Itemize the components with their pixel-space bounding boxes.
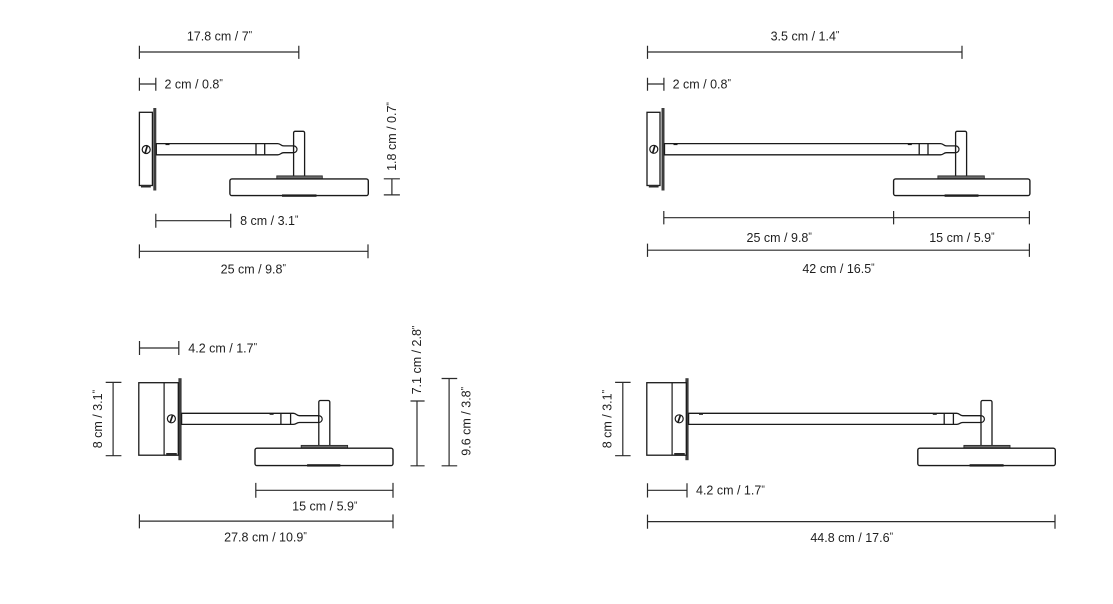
svg-text:2 cm / 0.8": 2 cm / 0.8": [673, 77, 732, 91]
svg-text:2 cm / 0.8": 2 cm / 0.8": [165, 77, 224, 91]
svg-text:8 cm / 3.1": 8 cm / 3.1": [91, 389, 105, 448]
svg-text:8 cm / 3.1": 8 cm / 3.1": [240, 214, 299, 228]
svg-text:25 cm / 9.8": 25 cm / 9.8": [221, 263, 287, 277]
svg-text:3.5 cm / 1.4": 3.5 cm / 1.4": [771, 29, 840, 43]
svg-text:7.1 cm / 2.8": 7.1 cm / 2.8": [410, 325, 424, 394]
svg-text:15 cm / 5.9": 15 cm / 5.9": [292, 500, 358, 514]
svg-text:4.2 cm / 1.7": 4.2 cm / 1.7": [696, 484, 765, 498]
svg-text:15 cm / 5.9": 15 cm / 5.9": [929, 231, 995, 245]
svg-text:9.6 cm / 3.8": 9.6 cm / 3.8": [460, 386, 474, 455]
svg-text:17.8 cm / 7": 17.8 cm / 7": [187, 29, 253, 43]
svg-text:42 cm / 16.5": 42 cm / 16.5": [802, 262, 875, 276]
svg-text:8 cm / 3.1": 8 cm / 3.1": [601, 389, 615, 448]
svg-text:27.8 cm / 10.9": 27.8 cm / 10.9": [224, 531, 307, 545]
svg-text:44.8 cm / 17.6": 44.8 cm / 17.6": [810, 531, 893, 545]
svg-text:1.8 cm / 0.7": 1.8 cm / 0.7": [385, 102, 399, 171]
svg-text:4.2 cm / 1.7": 4.2 cm / 1.7": [188, 341, 257, 355]
svg-text:25 cm / 9.8": 25 cm / 9.8": [747, 231, 813, 245]
